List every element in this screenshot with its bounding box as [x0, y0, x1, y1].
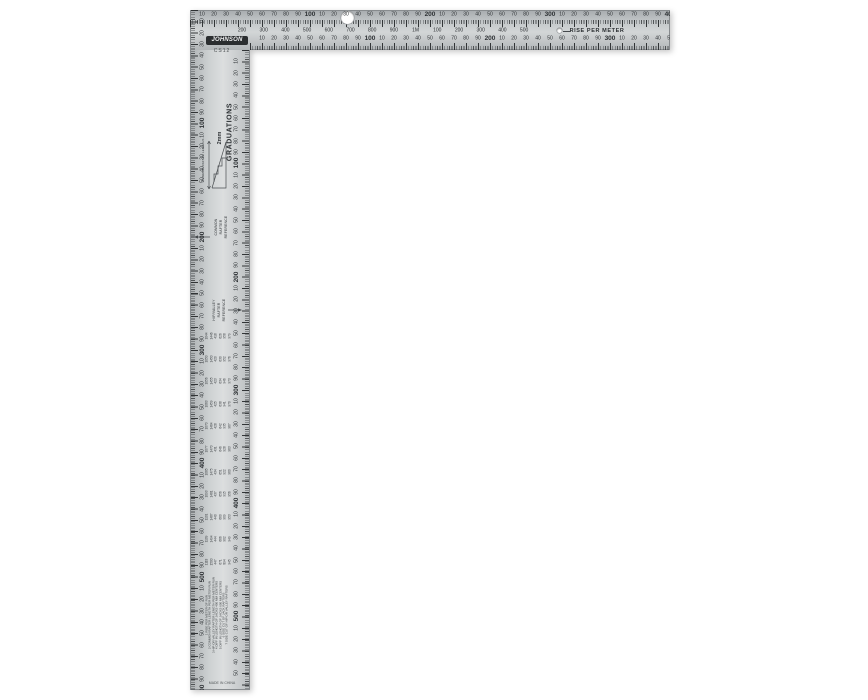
blade-outer-scale-label: 300: [545, 12, 556, 19]
blade-inner-scale-label: 90: [355, 36, 361, 41]
blade-inner-scale-label: 70: [451, 36, 457, 41]
rafter-table-value: 1085: [205, 468, 208, 475]
rafter-table-value: 953: [228, 514, 231, 519]
rafter-table-legend-line: 7 SIDE CUT OF HIP OR VALLEY RAFTERS: [226, 585, 229, 644]
tongue-outer-scale-label: 50: [201, 177, 206, 183]
blade-outer-scale-label: 10: [559, 13, 565, 18]
rafter-table-value: 945: [228, 559, 231, 564]
tongue-outer-scale-label: 30: [201, 268, 206, 274]
tongue-outer-scale-label: 90: [201, 223, 206, 229]
blade-inner-scale-label: 10: [259, 36, 265, 41]
tongue-inner-scale-label: 50: [235, 217, 240, 223]
blade-outer-scale-label: 60: [259, 13, 265, 18]
brand-logo: JOHNSON: [206, 36, 248, 45]
blade-inner-scale-label: 200: [485, 35, 496, 42]
tongue-inner-scale-label: 50: [235, 670, 240, 676]
blade-inner-scale-label: 10: [619, 36, 625, 41]
tongue-outer-tick-band-minor: [191, 10, 195, 690]
tongue-inner-scale-label: 40: [235, 206, 240, 212]
tongue-outer-scale-label: 40: [201, 166, 206, 172]
tongue-inner-scale-label: 70: [235, 127, 240, 133]
blade-outer-scale-label: 60: [379, 13, 385, 18]
tongue-inner-scale-label: 500: [234, 611, 241, 622]
blade-outer-scale-label: 100: [305, 12, 316, 19]
rafter-table-value: 437: [215, 492, 218, 497]
blade-rise-row-label: 200: [238, 28, 246, 33]
blade-inner-scale-label: 40: [415, 36, 421, 41]
rafter-table-value: 976: [228, 356, 231, 361]
blade-outer-scale-label: 70: [391, 13, 397, 18]
rafter-table-value: 1093: [205, 491, 208, 498]
blade-inner-scale-label: 80: [583, 36, 589, 41]
blade-inner-scale-label: 30: [523, 36, 529, 41]
tongue-outer-scale-label: 70: [201, 653, 206, 659]
blade-top-tick-band-minor: [190, 20, 670, 24]
rafter-table-value: 1070: [205, 423, 208, 430]
tongue-outer-scale-label: 80: [201, 551, 206, 557]
blade-inner-scale-label: 50: [307, 36, 313, 41]
tongue-inner-scale-label: 10: [235, 285, 240, 291]
blade-outer-scale-label: 200: [425, 12, 436, 19]
blade-outer-scale-label: 70: [511, 13, 517, 18]
tongue-outer-scale-label: 30: [201, 41, 206, 47]
tongue-inner-scale-label: 20: [235, 410, 240, 416]
tongue-outer-scale-label: 40: [201, 53, 206, 59]
model-number: CS12: [214, 48, 231, 54]
tongue-inner-scale-label: 20: [235, 636, 240, 642]
blade-outer-scale-label: 30: [223, 13, 229, 18]
blade-inner-scale-label: 70: [331, 36, 337, 41]
tongue-outer-scale-label: 600: [200, 685, 207, 696]
blade-inner-scale-label: 70: [571, 36, 577, 41]
blade-outer-scale-label: 400: [665, 12, 676, 19]
tongue-outer-scale-label: 80: [201, 211, 206, 217]
tongue-inner-scale-label: 80: [235, 364, 240, 370]
rafter-table-value: 444: [215, 537, 218, 542]
blade-inner-scale-label: 60: [319, 36, 325, 41]
blade-inner-scale-label: 60: [439, 36, 445, 41]
blade-outer-scale-label: 80: [403, 13, 409, 18]
fine-print: MADE IN CHINA: [209, 681, 235, 685]
rafter-table-value: 423: [215, 379, 218, 384]
blade-inner-scale-label: 80: [463, 36, 469, 41]
tongue-inner-scale-label: 10: [235, 59, 240, 65]
tongue-inner-scale-label: 80: [235, 478, 240, 484]
rafter-table-value: 949: [228, 537, 231, 542]
tongue-inner-scale-label: 50: [235, 444, 240, 450]
rafter-table-value: 1044: [205, 332, 208, 339]
blade-rise-row-label: 300: [260, 28, 268, 33]
tongue-outer-scale-label: 10: [201, 585, 206, 591]
hip-valley-reference: RAFTER: [217, 303, 221, 318]
blade-outer-scale-label: 60: [619, 13, 625, 18]
blade-inner-scale-label: 300: [605, 35, 616, 42]
tongue-outer-scale-label: 80: [201, 325, 206, 331]
rafter-table-value: 1109: [205, 536, 208, 543]
tongue-inner-scale-label: 40: [235, 432, 240, 438]
tongue-inner-scale-label: 60: [235, 568, 240, 574]
blade-outer-scale-label: 30: [463, 13, 469, 18]
blade-inner-scale-label: 30: [283, 36, 289, 41]
blade-outer-scale-label: 50: [247, 13, 253, 18]
rafter-table-value: 970: [228, 401, 231, 406]
tongue-outer-scale-label: 30: [201, 155, 206, 161]
blade-inner-scale-label: 100: [365, 35, 376, 42]
tongue-inner-scale-label: 40: [235, 319, 240, 325]
tongue-outer-scale-label: 60: [201, 415, 206, 421]
blade-rise-row-label: 100: [433, 28, 441, 33]
blade-outer-scale-label: 90: [415, 13, 421, 18]
blade-outer-scale-label: 40: [595, 13, 601, 18]
tongue-outer-scale-label: 300: [200, 345, 207, 356]
tongue-inner-scale-label: 50: [235, 557, 240, 563]
rise-per-meter-label: RISE PER METER: [570, 28, 625, 34]
hip-valley-reference: HIP/VALLEY: [212, 299, 216, 320]
blade-inner-tick-band-minor: [250, 46, 670, 50]
blade-outer-scale-label: 50: [367, 13, 373, 18]
blade-inner-scale-label: 20: [631, 36, 637, 41]
blade-inner-scale-label: 60: [559, 36, 565, 41]
blade-outer-scale-label: 20: [571, 13, 577, 18]
rafter-table-value: 960: [228, 469, 231, 474]
tongue-inner-scale-label: 20: [235, 70, 240, 76]
tongue-inner-scale-label: 100: [234, 158, 241, 169]
blade-inner-scale-label: 90: [595, 36, 601, 41]
tongue-outer-scale-label: 60: [201, 189, 206, 195]
tongue-outer-scale-label: 20: [201, 483, 206, 489]
framing-square-photo: RISE PER METER JOHNSON CS12 2mm GRADUATI…: [190, 10, 670, 690]
blade-rise-row-label: 900: [390, 28, 398, 33]
blade-inner-scale-label: 80: [343, 36, 349, 41]
rafter-table-value: 434: [215, 469, 218, 474]
tongue-inner-scale-label: 30: [235, 308, 240, 314]
blade-outer-scale-label: 20: [331, 13, 337, 18]
blade-outer-scale-label: 10: [319, 13, 325, 18]
tongue-outer-scale-label: 100: [200, 118, 207, 129]
rafter-diagram: [206, 128, 230, 194]
tongue-inner-scale-label: 60: [235, 342, 240, 348]
tongue-inner-scale-label: 10: [235, 172, 240, 178]
rafter-table-value: 956: [228, 492, 231, 497]
tongue-inner-scale-label: 70: [235, 466, 240, 472]
tongue-inner-edge: [249, 50, 250, 690]
tongue-inner-scale-label: 70: [235, 353, 240, 359]
tongue-outer-scale-label: 80: [201, 438, 206, 444]
tongue-outer-scale-label: 50: [201, 64, 206, 70]
blade-outer-scale-label: 80: [523, 13, 529, 18]
tongue-inner-scale-label: 50: [235, 330, 240, 336]
tongue-outer-scale-label: 10: [201, 132, 206, 138]
tongue-outer-scale-label: 40: [201, 393, 206, 399]
blade-inner-scale-label: 40: [535, 36, 541, 41]
blade-outer-scale-label: 10: [439, 13, 445, 18]
tongue-outer-scale-label: 60: [201, 75, 206, 81]
tongue-inner-scale-label: 70: [235, 240, 240, 246]
tongue-outer-scale-label: 90: [201, 109, 206, 115]
blade-outer-scale-label: 20: [211, 13, 217, 18]
tongue-inner-scale-label: 80: [235, 591, 240, 597]
tongue-inner-scale-label: 90: [235, 262, 240, 268]
rafter-table-value: 963: [228, 446, 231, 451]
blade-outer-scale-label: 70: [271, 13, 277, 18]
tongue-inner-scale-label: 30: [235, 534, 240, 540]
tongue-outer-scale-label: 20: [201, 257, 206, 263]
rafter-table-value: 440: [215, 514, 218, 519]
hip-valley-reference: REFERENCE: [222, 299, 226, 322]
blade-outer-scale-label: 80: [283, 13, 289, 18]
tongue-outer-scale-label: 20: [201, 370, 206, 376]
tongue-outer-scale-label: 500: [200, 571, 207, 582]
blade-rise-row-label: 1M: [412, 28, 419, 33]
blade-outer-scale-label: 90: [295, 13, 301, 18]
tongue-outer-scale-label: 60: [201, 302, 206, 308]
rafter-table-value: 431: [215, 446, 218, 451]
blade-rise-row-label: 500: [520, 28, 528, 33]
blade-rise-row-label: 500: [303, 28, 311, 33]
tongue-inner-scale-label: 30: [235, 194, 240, 200]
hang-hole: [557, 28, 562, 33]
blade-inner-scale-label: 90: [475, 36, 481, 41]
common-rafter-reference: RAFTER: [219, 220, 223, 235]
blade-outer-scale-label: 30: [583, 13, 589, 18]
tongue-inner-scale-label: 30: [235, 81, 240, 87]
tongue-inner-scale-label: 30: [235, 421, 240, 427]
blade-outer-scale-label: 70: [631, 13, 637, 18]
tongue-inner-scale-label: 10: [235, 398, 240, 404]
blade-inner-scale-label: 50: [547, 36, 553, 41]
blade-inner-scale-label: 10: [499, 36, 505, 41]
blade-outer-scale-label: 90: [535, 13, 541, 18]
blade-rise-row-label: 400: [498, 28, 506, 33]
rafter-table-value: 1050: [205, 355, 208, 362]
tongue-inner-scale-label: 20: [235, 183, 240, 189]
rafter-table-value: 1077: [205, 445, 208, 452]
blade-outer-scale-label: 40: [235, 13, 241, 18]
tongue-outer-scale-label: 60: [201, 529, 206, 535]
tongue-outer-scale-label: 80: [201, 665, 206, 671]
tongue-inner-scale-label: 20: [235, 296, 240, 302]
rafter-table-value: 979: [228, 333, 231, 338]
tongue-outer-scale-label: 40: [201, 279, 206, 285]
blade-inner-scale-label: 10: [379, 36, 385, 41]
blade-inner-scale-label: 20: [391, 36, 397, 41]
blade-rise-row-label: 800: [368, 28, 376, 33]
tongue-inner-scale-label: 80: [235, 251, 240, 257]
blade-inner-scale-label: 40: [295, 36, 301, 41]
blade-outer-scale-label: 20: [451, 13, 457, 18]
tongue-inner-scale-label: 30: [235, 648, 240, 654]
common-rafter-reference: COMMON: [214, 218, 218, 235]
tongue-inner-scale-label: 40: [235, 659, 240, 665]
rafter-table-value: 418: [215, 333, 218, 338]
tongue-inner-scale-label: 40: [235, 93, 240, 99]
tongue-inner-scale-label: 90: [235, 489, 240, 495]
blade-inner-scale-label: 20: [271, 36, 277, 41]
tongue-inner-scale-label: 10: [235, 625, 240, 631]
tongue-inner-scale-label: 60: [235, 115, 240, 121]
tongue-inner-scale-label: 200: [234, 271, 241, 282]
tongue-outer-scale-label: 200: [200, 231, 207, 242]
rafter-table-value: 1101: [205, 513, 208, 520]
blade-rise-row-label: 600: [325, 28, 333, 33]
blade-inner-scale-label: 40: [655, 36, 661, 41]
rafter-table-value: 1056: [205, 378, 208, 385]
blade-inner-scale-label: 30: [643, 36, 649, 41]
tongue-inner-scale-label: 70: [235, 580, 240, 586]
rafter-table-value: 1063: [205, 400, 208, 407]
tongue-outer-scale-label: 50: [201, 291, 206, 297]
blade-outer-scale-label: 10: [199, 13, 205, 18]
blade-inner-scale-label: 30: [403, 36, 409, 41]
tongue-inner-scale-label: 80: [235, 138, 240, 144]
blade-outer-scale-label: 50: [487, 13, 493, 18]
rafter-table-value: 1118: [205, 559, 208, 566]
tongue-inner-tick-band-minor: [245, 50, 249, 690]
blade-rise-row-label: 700: [346, 28, 354, 33]
framing-square-body: RISE PER METER JOHNSON CS12 2mm GRADUATI…: [190, 10, 670, 690]
tongue-inner-scale-label: 90: [235, 602, 240, 608]
tongue-inner-scale-label: 50: [235, 104, 240, 110]
tongue-outer-scale-label: 80: [201, 98, 206, 104]
tongue-outer-scale-label: 20: [201, 30, 206, 36]
tongue-inner-scale-label: 40: [235, 546, 240, 552]
blade-outer-scale-label: 50: [607, 13, 613, 18]
tongue-outer-scale-label: 70: [201, 87, 206, 93]
tongue-outer-scale-label: 70: [201, 200, 206, 206]
tongue-outer-scale-label: 20: [201, 143, 206, 149]
blade-outer-scale-label: 90: [655, 13, 661, 18]
blade-inner-scale-label: 50: [667, 36, 673, 41]
tongue-outer-scale-label: 10: [201, 19, 206, 25]
blade-outer-scale-label: 40: [355, 13, 361, 18]
tongue-inner-scale-label: 20: [235, 523, 240, 529]
tongue-outer-scale-label: 10: [201, 245, 206, 251]
blade-outer-scale-label: 40: [475, 13, 481, 18]
rafter-table-value: 420: [215, 356, 218, 361]
blade-outer-scale-label: 30: [343, 13, 349, 18]
blade-rise-row-label: 300: [477, 28, 485, 33]
rafter-table-value: 447: [215, 559, 218, 564]
tongue-inner-scale-label: 90: [235, 376, 240, 382]
tongue-outer-scale-label: 90: [201, 676, 206, 682]
tongue-outer-scale-label: 400: [200, 458, 207, 469]
tongue-outer-scale-label: 70: [201, 313, 206, 319]
tongue-inner-scale-label: 10: [235, 512, 240, 518]
tongue-inner-scale-label: 300: [234, 384, 241, 395]
tongue-inner-scale-label: 90: [235, 149, 240, 155]
blade-outer-scale-label: 80: [643, 13, 649, 18]
blade-rise-row-label: 200: [455, 28, 463, 33]
blade-rise-row-label: 400: [281, 28, 289, 33]
tongue-inner-scale-label: 400: [234, 498, 241, 509]
blade-outer-scale-label: 60: [499, 13, 505, 18]
common-rafter-reference: REFERENCE: [224, 216, 228, 239]
tongue-inner-scale-label: 60: [235, 228, 240, 234]
blade-inner-scale-label: 50: [427, 36, 433, 41]
tongue-outer-scale-label: 40: [201, 506, 206, 512]
rafter-table-value: 973: [228, 379, 231, 384]
tongue-outer-scale-label: 60: [201, 642, 206, 648]
rafter-table-value: 425: [215, 401, 218, 406]
rafter-table-value: 428: [215, 424, 218, 429]
rafter-table-value: 967: [228, 424, 231, 429]
tongue-inner-scale-label: 60: [235, 455, 240, 461]
blade-inner-scale-label: 20: [511, 36, 517, 41]
